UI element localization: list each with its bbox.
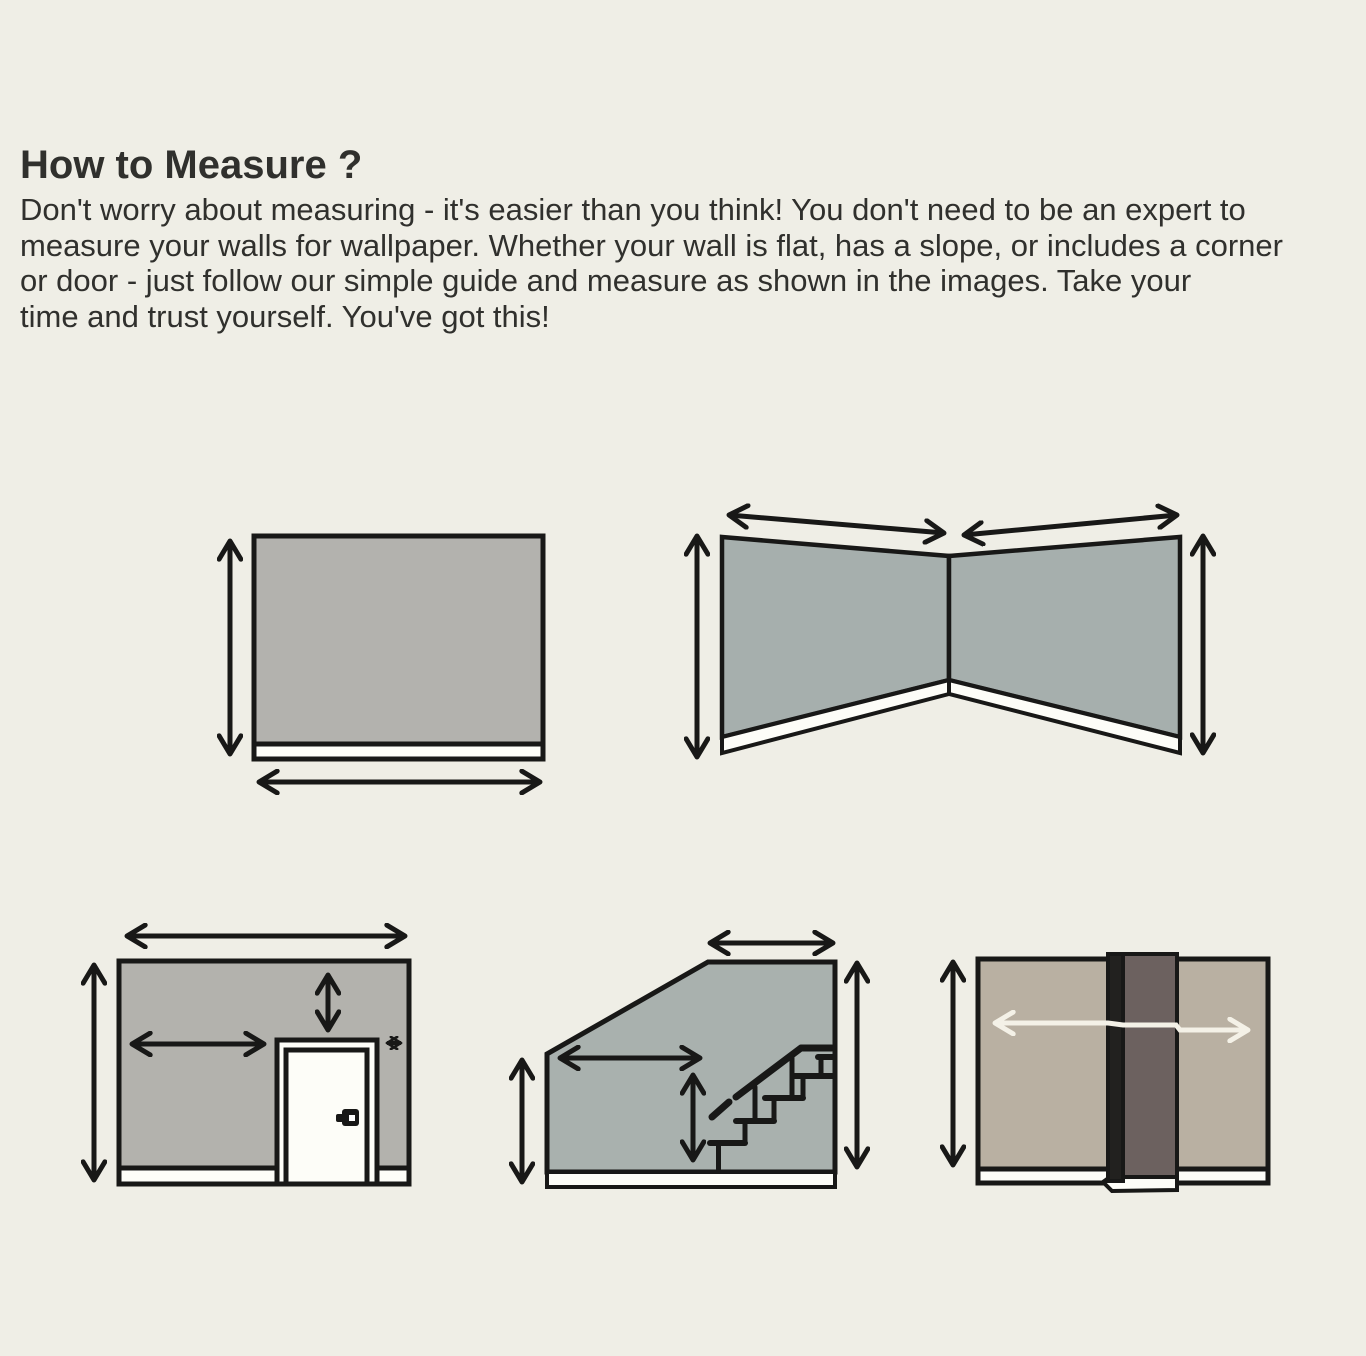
wall-with-door-diagram	[65, 915, 430, 1205]
intro-paragraph: Don't worry about measuring - it's easie…	[20, 192, 1283, 334]
flat-wall-diagram	[195, 495, 575, 805]
intro-line-3: or door - just follow our simple guide a…	[20, 263, 1283, 299]
right-width-arrow	[964, 515, 1177, 535]
how-to-measure-infographic: How to Measure ? Don't worry about measu…	[0, 0, 1366, 1356]
intro-line-2: measure your walls for wallpaper. Whethe…	[20, 228, 1283, 264]
column-side-face	[1108, 954, 1123, 1181]
wall-with-column-diagram	[925, 935, 1305, 1215]
intro-line-1: Don't worry about measuring - it's easie…	[20, 192, 1283, 228]
left-width-arrow	[729, 515, 944, 533]
flat-wall	[254, 536, 543, 744]
intro-line-4: time and trust yourself. You've got this…	[20, 299, 1283, 335]
corner-wall-diagram	[665, 485, 1235, 785]
column-front-face	[1123, 954, 1177, 1177]
page-title: How to Measure ?	[20, 143, 362, 187]
staircase-wall-diagram	[495, 925, 880, 1205]
stair-wall-baseboard	[547, 1172, 835, 1187]
